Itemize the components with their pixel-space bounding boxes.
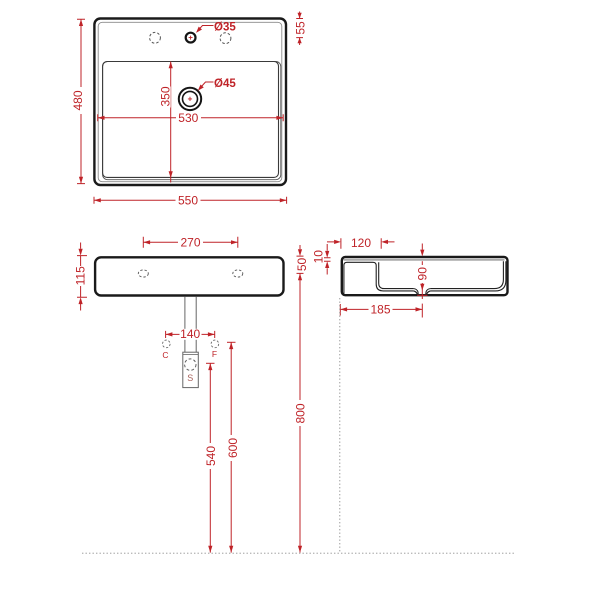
svg-text:530: 530 [178,111,198,125]
svg-text:140: 140 [180,327,200,341]
svg-text:270: 270 [180,236,200,250]
svg-text:10: 10 [311,250,325,264]
svg-text:90: 90 [415,267,429,281]
svg-text:550: 550 [178,194,198,208]
svg-text:120: 120 [351,236,371,250]
svg-text:480: 480 [71,90,85,110]
svg-text:50: 50 [295,258,309,272]
svg-text:800: 800 [294,403,308,423]
svg-text:185: 185 [370,302,390,316]
svg-text:Ø35: Ø35 [214,22,236,34]
svg-text:350: 350 [158,86,172,106]
svg-text:600: 600 [226,438,240,458]
svg-text:Ø45: Ø45 [214,78,236,90]
svg-text:S: S [187,373,193,383]
svg-text:C: C [162,350,168,360]
svg-text:55: 55 [294,21,308,35]
svg-text:540: 540 [204,446,218,466]
svg-text:F: F [212,349,217,359]
svg-text:115: 115 [74,266,88,285]
